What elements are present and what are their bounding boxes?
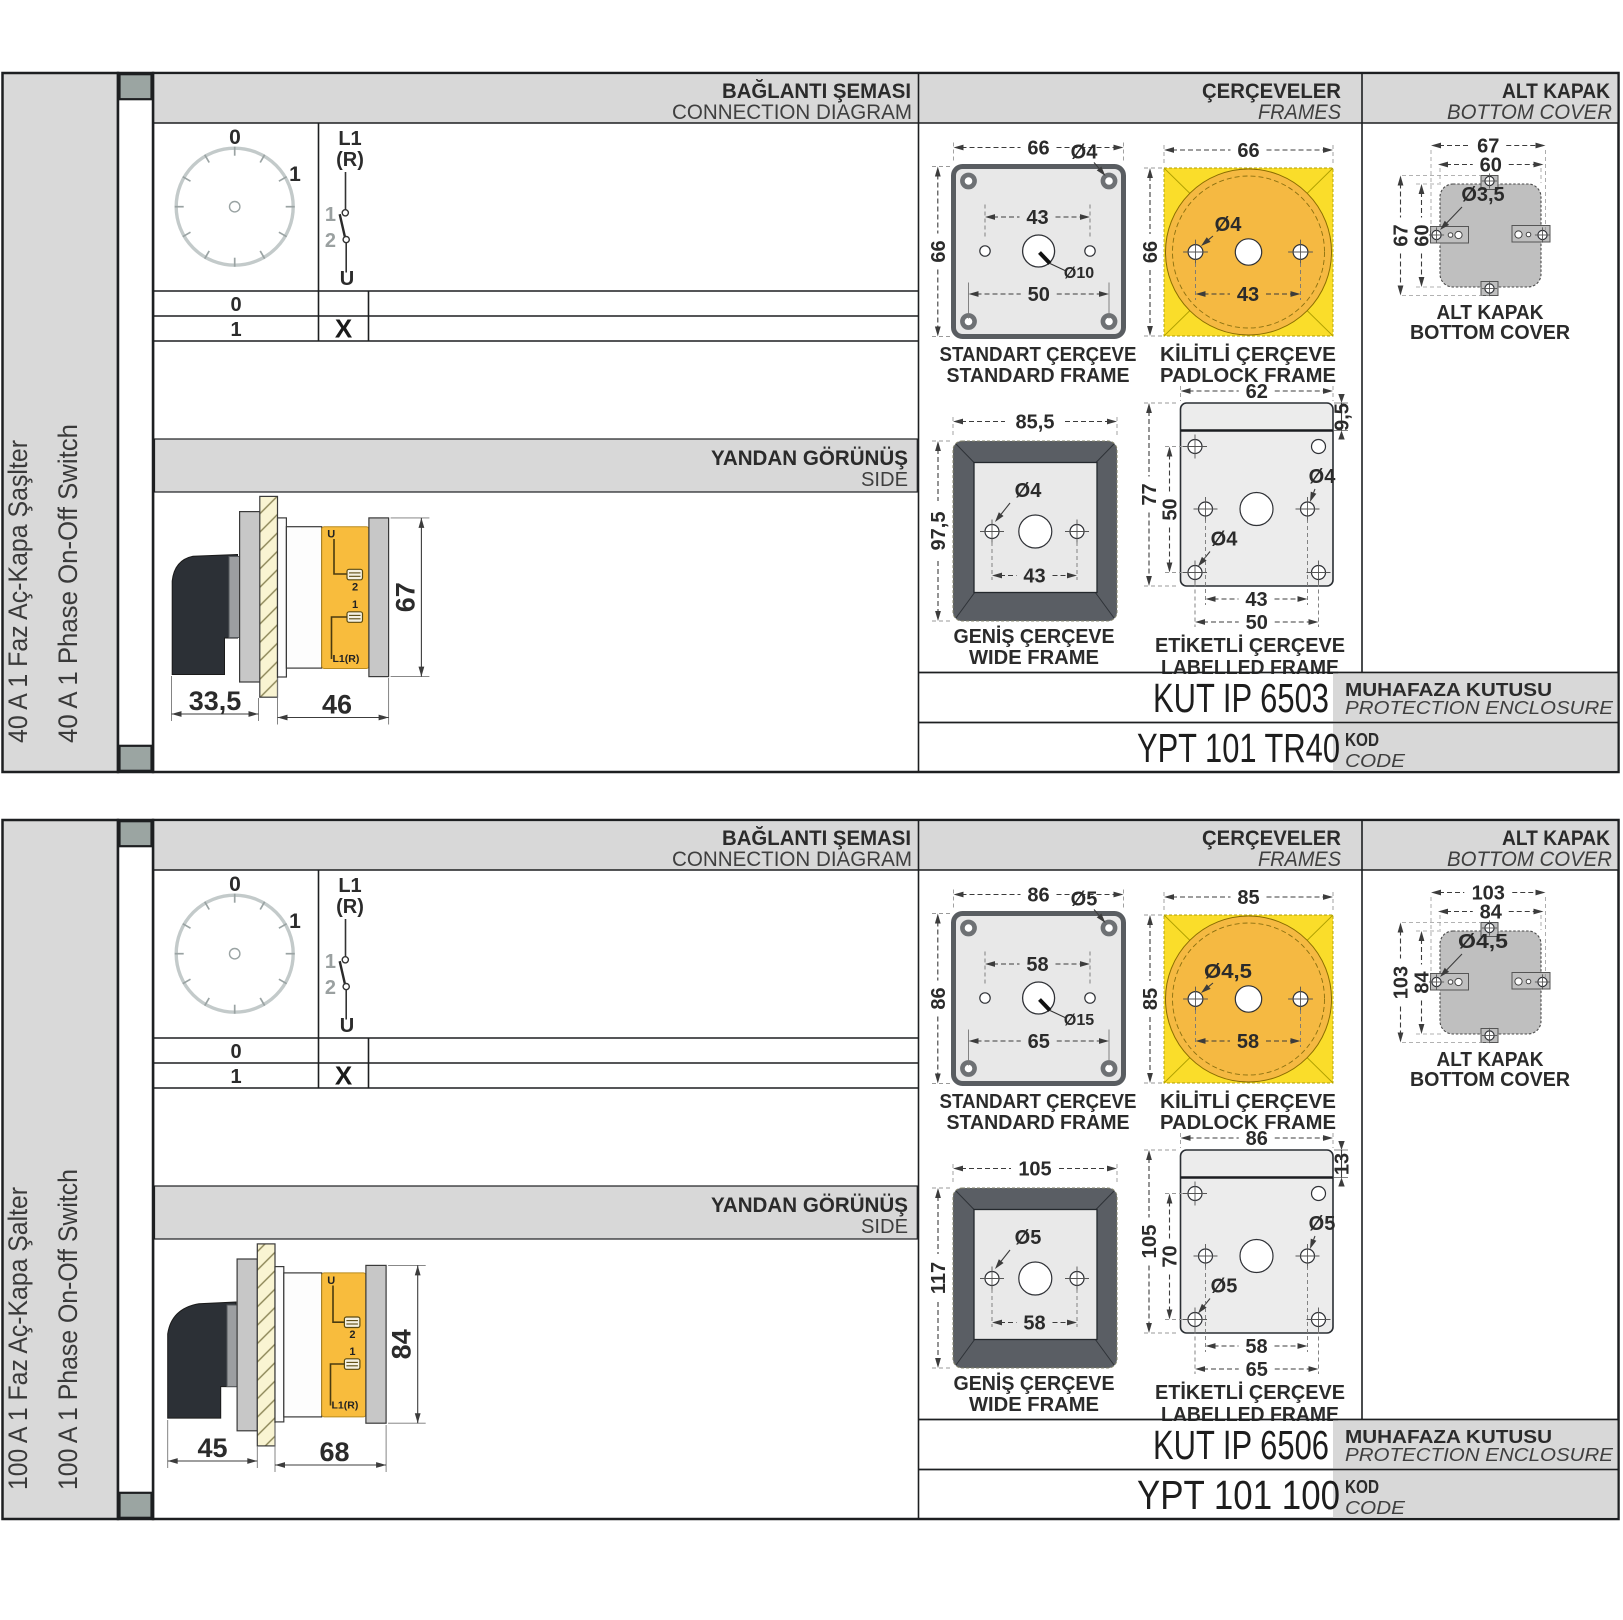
svg-text:MUHAFAZA KUTUSU: MUHAFAZA KUTUSU: [1345, 1427, 1552, 1447]
svg-text:1: 1: [289, 910, 301, 933]
svg-text:105: 105: [1139, 1225, 1161, 1259]
svg-text:33,5: 33,5: [189, 686, 242, 716]
svg-text:9,5: 9,5: [1332, 403, 1354, 431]
svg-text:86: 86: [1246, 1128, 1268, 1150]
svg-text:85,5: 85,5: [1016, 412, 1055, 434]
svg-text:85: 85: [1140, 988, 1162, 1010]
svg-text:Ø4: Ø4: [1215, 214, 1243, 236]
svg-text:0: 0: [229, 873, 241, 896]
svg-text:BOTTOM COVER: BOTTOM COVER: [1447, 101, 1612, 124]
svg-text:105: 105: [1018, 1159, 1051, 1181]
svg-text:STANDART ÇERÇEVE: STANDART ÇERÇEVE: [940, 1091, 1137, 1113]
svg-text:84: 84: [387, 1329, 417, 1359]
svg-text:Ø15: Ø15: [1064, 1012, 1094, 1029]
svg-text:CODE: CODE: [1345, 1498, 1406, 1518]
svg-text:ÇERÇEVELER: ÇERÇEVELER: [1202, 827, 1341, 850]
svg-text:77: 77: [1139, 483, 1161, 505]
svg-text:L1(R): L1(R): [332, 1400, 359, 1412]
svg-text:KOD: KOD: [1345, 1477, 1379, 1497]
svg-text:ÇERÇEVELER: ÇERÇEVELER: [1202, 80, 1341, 103]
svg-text:FRAMES: FRAMES: [1258, 848, 1341, 871]
svg-text:43: 43: [1026, 207, 1048, 229]
svg-text:2: 2: [325, 977, 336, 999]
svg-text:1: 1: [230, 1066, 241, 1088]
svg-text:84: 84: [1480, 902, 1503, 924]
svg-text:66: 66: [1237, 140, 1259, 162]
svg-text:85: 85: [1237, 887, 1259, 909]
svg-text:Ø4,5: Ø4,5: [1458, 931, 1508, 953]
svg-text:U: U: [327, 529, 335, 541]
svg-text:2: 2: [352, 581, 358, 593]
svg-text:YANDAN GÖRÜNÜŞ: YANDAN GÖRÜNÜŞ: [711, 1194, 908, 1217]
svg-text:U: U: [340, 268, 354, 290]
svg-text:ETİKETLİ ÇERÇEVE: ETİKETLİ ÇERÇEVE: [1155, 634, 1345, 657]
svg-text:SIDE: SIDE: [861, 469, 908, 491]
svg-text:STANDARD FRAME: STANDARD FRAME: [947, 1112, 1130, 1134]
svg-text:U: U: [340, 1015, 354, 1037]
svg-text:1: 1: [325, 951, 336, 973]
svg-text:67: 67: [390, 582, 420, 612]
svg-text:KUT IP 6506: KUT IP 6506: [1153, 1422, 1329, 1468]
svg-text:Ø4,5: Ø4,5: [1204, 961, 1252, 983]
svg-text:100 A 1 Phase On-Off Switch: 100 A 1 Phase On-Off Switch: [53, 1169, 83, 1490]
svg-text:STANDARD FRAME: STANDARD FRAME: [947, 365, 1130, 387]
svg-text:50: 50: [1028, 284, 1050, 306]
svg-text:68: 68: [320, 1437, 350, 1467]
svg-text:PROTECTION ENCLOSURE: PROTECTION ENCLOSURE: [1345, 1445, 1614, 1465]
svg-text:1: 1: [325, 204, 336, 226]
svg-text:CONNECTION DIAGRAM: CONNECTION DIAGRAM: [672, 101, 912, 124]
svg-text:84: 84: [1412, 971, 1434, 994]
svg-text:Ø10: Ø10: [1064, 265, 1094, 282]
svg-text:2: 2: [349, 1329, 355, 1341]
svg-text:1: 1: [349, 1346, 355, 1358]
svg-text:KOD: KOD: [1345, 730, 1379, 750]
svg-text:60: 60: [1412, 224, 1434, 246]
svg-text:117: 117: [928, 1262, 950, 1294]
svg-text:66: 66: [1140, 241, 1162, 263]
svg-text:58: 58: [1245, 1336, 1267, 1358]
svg-text:CODE: CODE: [1345, 751, 1406, 771]
svg-text:ETİKETLİ ÇERÇEVE: ETİKETLİ ÇERÇEVE: [1155, 1381, 1345, 1404]
svg-text:CONNECTION DIAGRAM: CONNECTION DIAGRAM: [672, 848, 912, 871]
svg-text:43: 43: [1237, 284, 1259, 306]
svg-text:Ø4: Ø4: [1309, 466, 1337, 488]
svg-text:Ø4: Ø4: [1211, 529, 1239, 551]
svg-text:BAĞLANTI ŞEMASI: BAĞLANTI ŞEMASI: [722, 826, 911, 850]
svg-text:ALT KAPAK: ALT KAPAK: [1502, 80, 1610, 103]
svg-text:66: 66: [1027, 138, 1049, 160]
svg-text:KUT IP 6503: KUT IP 6503: [1153, 675, 1329, 721]
svg-text:L1(R): L1(R): [333, 653, 360, 665]
svg-text:40 A 1 Phase On-Off Switch: 40 A 1 Phase On-Off Switch: [53, 424, 83, 743]
svg-text:WIDE FRAME: WIDE FRAME: [969, 647, 1099, 669]
svg-text:WIDE FRAME: WIDE FRAME: [969, 1394, 1099, 1416]
svg-text:Ø5: Ø5: [1211, 1276, 1238, 1298]
svg-text:65: 65: [1246, 1359, 1268, 1381]
svg-text:43: 43: [1245, 589, 1267, 611]
svg-text:X: X: [335, 1061, 353, 1091]
svg-text:0: 0: [229, 126, 241, 149]
svg-text:58: 58: [1023, 1313, 1045, 1335]
svg-text:YPT 101 TR40: YPT 101 TR40: [1137, 725, 1340, 771]
svg-text:KİLİTLİ ÇERÇEVE: KİLİTLİ ÇERÇEVE: [1160, 1090, 1336, 1113]
svg-text:L1: L1: [338, 128, 361, 150]
svg-text:BOTTOM COVER: BOTTOM COVER: [1410, 322, 1571, 344]
svg-text:0: 0: [230, 1041, 241, 1063]
svg-text:MUHAFAZA KUTUSU: MUHAFAZA KUTUSU: [1345, 680, 1552, 700]
svg-text:13: 13: [1332, 1153, 1354, 1175]
svg-text:65: 65: [1028, 1031, 1050, 1053]
svg-text:43: 43: [1023, 566, 1045, 588]
svg-text:KİLİTLİ ÇERÇEVE: KİLİTLİ ÇERÇEVE: [1160, 343, 1336, 366]
svg-text:Ø5: Ø5: [1071, 889, 1098, 911]
svg-text:70: 70: [1160, 1245, 1182, 1267]
svg-text:(R): (R): [336, 896, 364, 918]
svg-text:BOTTOM COVER: BOTTOM COVER: [1447, 848, 1612, 871]
svg-text:ALT KAPAK: ALT KAPAK: [1437, 1049, 1545, 1071]
svg-text:Ø5: Ø5: [1015, 1227, 1042, 1249]
svg-text:86: 86: [928, 987, 950, 1009]
svg-text:66: 66: [928, 240, 950, 262]
svg-text:FRAMES: FRAMES: [1258, 101, 1341, 124]
svg-text:2: 2: [325, 230, 336, 252]
svg-text:58: 58: [1026, 954, 1048, 976]
svg-text:50: 50: [1246, 612, 1268, 634]
svg-text:0: 0: [230, 294, 241, 316]
svg-text:ALT KAPAK: ALT KAPAK: [1437, 302, 1545, 324]
svg-text:1: 1: [352, 599, 358, 611]
svg-text:GENİŞ ÇERÇEVE: GENİŞ ÇERÇEVE: [954, 625, 1115, 648]
svg-text:60: 60: [1480, 155, 1502, 177]
svg-text:97,5: 97,5: [928, 512, 950, 551]
svg-text:67: 67: [1391, 224, 1413, 246]
svg-text:STANDART ÇERÇEVE: STANDART ÇERÇEVE: [940, 344, 1137, 366]
svg-text:BAĞLANTI ŞEMASI: BAĞLANTI ŞEMASI: [722, 79, 911, 103]
svg-text:1: 1: [230, 319, 241, 341]
svg-text:(R): (R): [336, 149, 364, 171]
svg-text:45: 45: [197, 1433, 227, 1463]
svg-text:PROTECTION ENCLOSURE: PROTECTION ENCLOSURE: [1345, 698, 1614, 718]
svg-text:100 A 1 Faz Aç-Kapa Şalter: 100 A 1 Faz Aç-Kapa Şalter: [3, 1187, 33, 1490]
svg-text:46: 46: [322, 690, 352, 720]
svg-text:58: 58: [1237, 1031, 1259, 1053]
svg-text:ALT KAPAK: ALT KAPAK: [1502, 827, 1610, 850]
svg-text:SIDE: SIDE: [861, 1216, 908, 1238]
svg-text:YANDAN GÖRÜNÜŞ: YANDAN GÖRÜNÜŞ: [711, 447, 908, 470]
svg-text:40 A 1 Faz Aç-Kapa Şaşlter: 40 A 1 Faz Aç-Kapa Şaşlter: [3, 440, 33, 743]
svg-text:U: U: [327, 1275, 335, 1287]
svg-text:YPT 101 100: YPT 101 100: [1137, 1472, 1340, 1518]
svg-text:Ø5: Ø5: [1309, 1213, 1336, 1235]
svg-text:103: 103: [1391, 966, 1413, 999]
svg-text:50: 50: [1160, 498, 1182, 520]
svg-text:GENİŞ ÇERÇEVE: GENİŞ ÇERÇEVE: [954, 1372, 1115, 1395]
svg-text:86: 86: [1027, 885, 1049, 907]
svg-text:1: 1: [289, 163, 301, 186]
svg-text:L1: L1: [338, 875, 361, 897]
svg-text:62: 62: [1246, 381, 1268, 403]
svg-text:BOTTOM COVER: BOTTOM COVER: [1410, 1069, 1571, 1091]
svg-text:Ø3,5: Ø3,5: [1461, 184, 1504, 206]
svg-text:X: X: [335, 314, 353, 344]
svg-text:Ø4: Ø4: [1015, 480, 1043, 502]
svg-text:Ø4: Ø4: [1071, 142, 1099, 164]
